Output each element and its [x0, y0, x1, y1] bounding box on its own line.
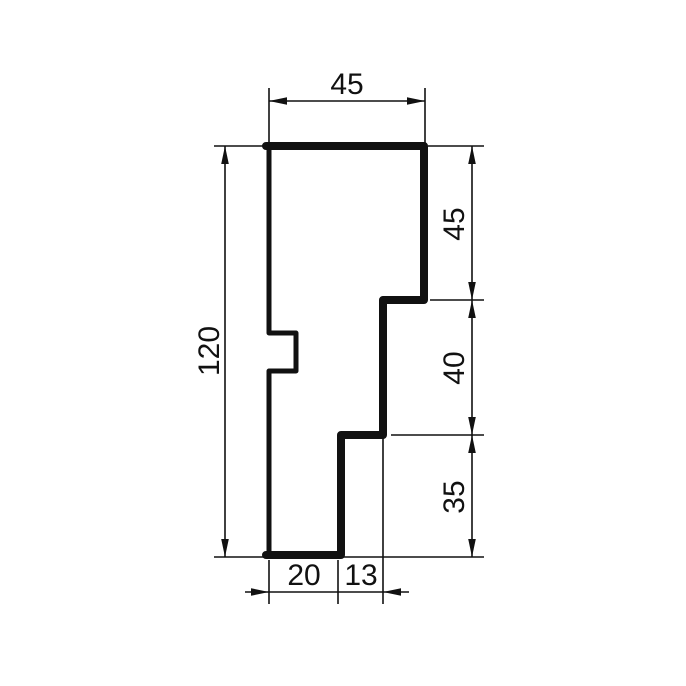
dim-label-top-width: 45 — [330, 68, 363, 101]
arrow-down-icon — [468, 417, 476, 435]
drawing-canvas: 45 120 45 40 35 20 13 — [0, 0, 686, 686]
arrow-up-icon — [221, 146, 229, 164]
arrow-down-icon — [468, 282, 476, 300]
dim-label-bottom-right: 13 — [344, 559, 377, 592]
dim-label-bottom-left: 20 — [287, 559, 320, 592]
profile-face-line — [266, 146, 424, 555]
profile-dimension-drawing: 45 120 45 40 35 20 13 — [0, 0, 686, 686]
profile-outline — [266, 146, 424, 555]
arrow-left-icon — [383, 588, 401, 596]
dim-label-side-lower: 35 — [438, 480, 471, 513]
extension-lines — [214, 88, 484, 604]
dim-label-total-height: 120 — [193, 326, 226, 376]
arrow-down-icon — [221, 539, 229, 557]
arrow-right-icon — [251, 588, 269, 596]
dimension-lines — [225, 101, 472, 592]
arrow-up-icon — [468, 146, 476, 164]
dimension-arrows — [221, 97, 476, 596]
dim-label-side-middle: 40 — [438, 351, 471, 384]
arrow-right-icon — [407, 97, 425, 105]
arrow-up-icon — [468, 435, 476, 453]
dim-label-side-upper: 45 — [438, 207, 471, 240]
arrow-down-icon — [468, 539, 476, 557]
arrow-up-icon — [468, 300, 476, 318]
profile-back-line-with-notch — [269, 150, 296, 551]
arrow-left-icon — [269, 97, 287, 105]
